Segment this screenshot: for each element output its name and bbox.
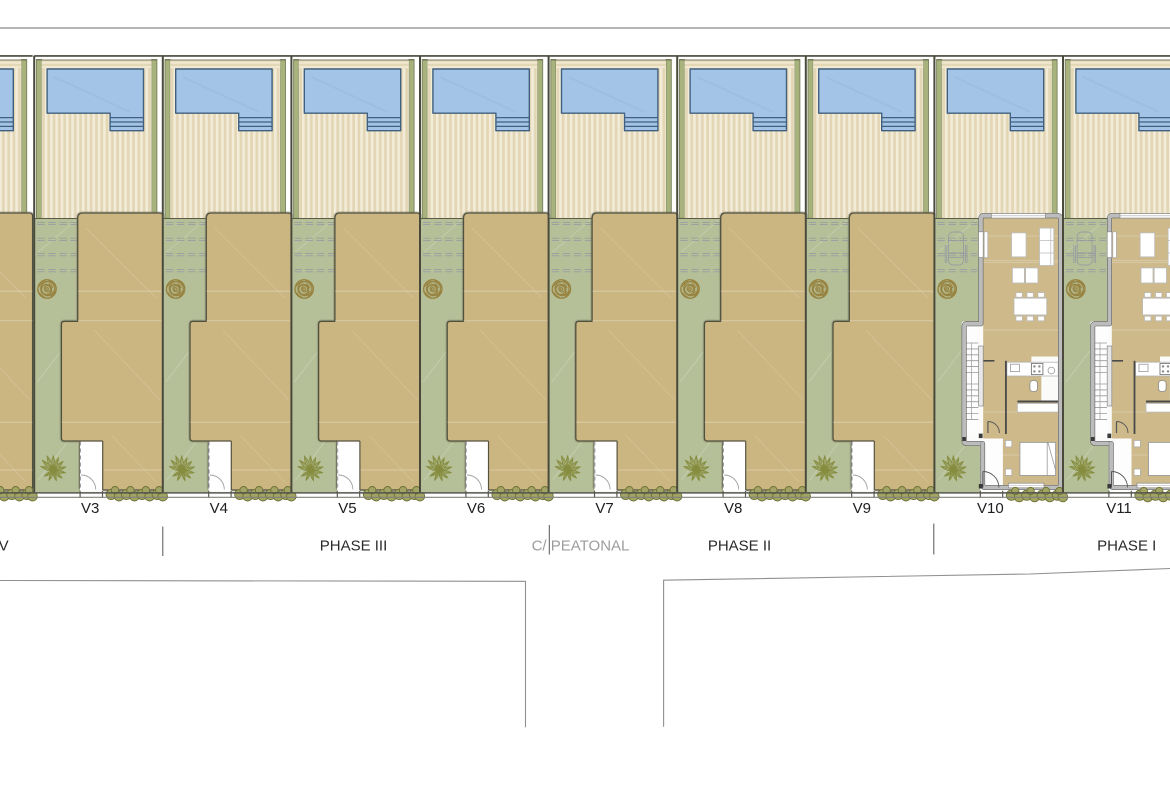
svg-text:V4: V4 xyxy=(210,500,228,517)
svg-text:V5: V5 xyxy=(338,500,356,517)
svg-text:V6: V6 xyxy=(467,500,485,517)
svg-text:PHASE III: PHASE III xyxy=(320,538,388,555)
svg-text:PHASE I: PHASE I xyxy=(1097,538,1156,555)
svg-text:V11: V11 xyxy=(1106,500,1132,517)
svg-text:PHASE IV: PHASE IV xyxy=(0,538,9,555)
svg-text:C/ PEATONAL: C/ PEATONAL xyxy=(532,538,630,555)
svg-text:V7: V7 xyxy=(595,500,613,517)
svg-text:PHASE II: PHASE II xyxy=(708,538,771,555)
svg-text:V3: V3 xyxy=(81,500,99,517)
svg-text:V9: V9 xyxy=(853,500,871,517)
svg-text:V8: V8 xyxy=(724,500,742,517)
svg-text:V10: V10 xyxy=(977,500,1004,517)
